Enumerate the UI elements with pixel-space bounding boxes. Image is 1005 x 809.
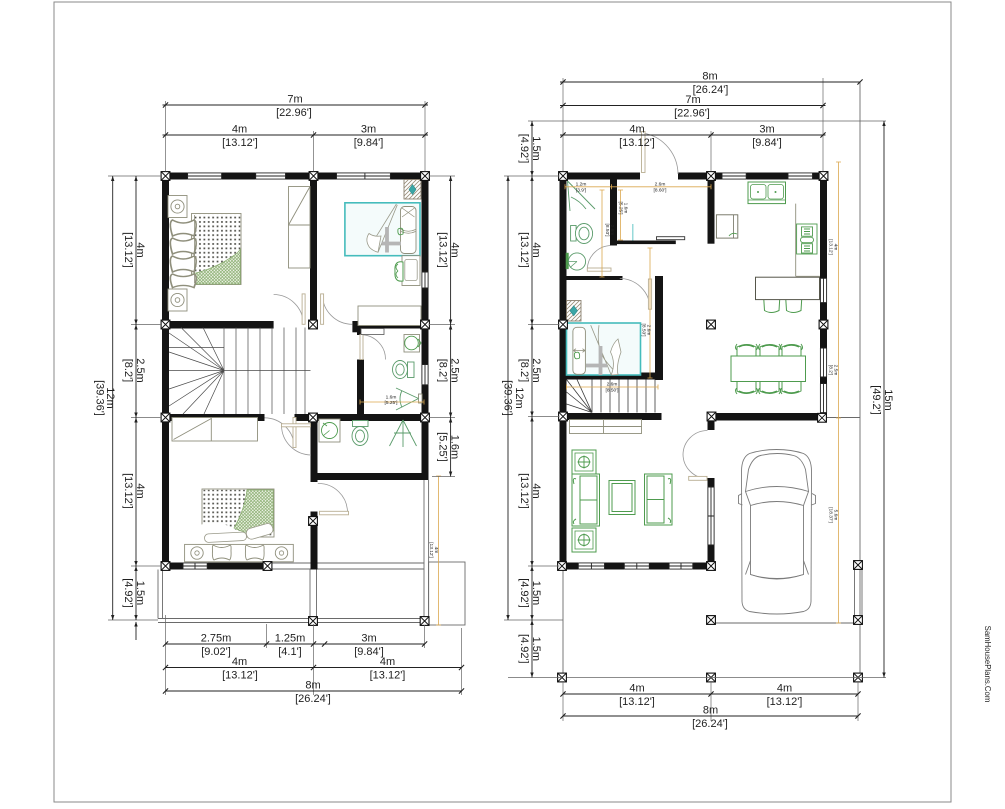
svg-text:8m: 8m (703, 705, 718, 717)
svg-text:[18.37']: [18.37'] (828, 507, 834, 523)
svg-text:[4.92']: [4.92'] (122, 578, 134, 608)
svg-text:[8.50']: [8.50'] (606, 388, 619, 394)
svg-text:4m: 4m (530, 242, 542, 257)
svg-text:1.6m: 1.6m (449, 435, 461, 459)
svg-text:2.75m: 2.75m (201, 633, 232, 645)
svg-text:[13.12']: [13.12'] (767, 696, 803, 708)
svg-text:7m: 7m (685, 94, 700, 106)
svg-text:8m: 8m (702, 71, 717, 83)
svg-text:3m: 3m (759, 124, 774, 136)
svg-text:4m: 4m (232, 656, 247, 668)
svg-text:2.5m: 2.5m (449, 358, 461, 382)
svg-text:8m: 8m (305, 680, 320, 692)
svg-text:4m: 4m (134, 242, 146, 257)
svg-text:[26.24']: [26.24'] (692, 718, 728, 730)
svg-text:[13.12']: [13.12'] (828, 239, 834, 255)
svg-text:[13.12']: [13.12'] (619, 137, 655, 149)
svg-text:[39.36']: [39.36'] (94, 380, 106, 416)
svg-text:1.5m: 1.5m (530, 581, 542, 605)
svg-text:2.6m: 2.6m (607, 382, 618, 388)
svg-text:[8.60']: [8.60'] (654, 188, 667, 194)
svg-text:4m: 4m (134, 483, 146, 498)
svg-text:[4.92']: [4.92'] (518, 634, 530, 664)
svg-text:[8.2']: [8.2'] (437, 359, 449, 383)
svg-text:1.2m: 1.2m (576, 182, 587, 188)
svg-text:[9.02']: [9.02'] (201, 646, 231, 658)
svg-text:12m: 12m (513, 387, 525, 408)
svg-text:[8.50']: [8.50'] (641, 324, 647, 337)
svg-text:[5.25']: [5.25'] (385, 400, 398, 406)
svg-text:2.6m: 2.6m (655, 182, 666, 188)
svg-text:[13.12']: [13.12'] (370, 669, 406, 681)
svg-text:SamHousePlans.Com: SamHousePlans.Com (983, 626, 992, 703)
svg-text:4m: 4m (449, 242, 461, 257)
svg-text:3m: 3m (361, 633, 376, 645)
svg-text:4m: 4m (530, 483, 542, 498)
svg-text:[13.12']: [13.12'] (222, 137, 258, 149)
svg-text:[8.50']: [8.50'] (604, 224, 610, 237)
svg-text:[13.12']: [13.12'] (122, 232, 134, 268)
svg-text:[8.2']: [8.2'] (122, 359, 134, 383)
svg-text:1.5m: 1.5m (134, 581, 146, 605)
svg-text:[4.92']: [4.92'] (518, 134, 530, 164)
svg-text:4m: 4m (232, 124, 247, 136)
svg-text:[9.84']: [9.84'] (752, 137, 782, 149)
svg-text:15m: 15m (882, 389, 894, 410)
svg-text:[13.12']: [13.12'] (122, 473, 134, 509)
svg-text:2.5m: 2.5m (530, 358, 542, 382)
svg-text:[3.9']: [3.9'] (576, 188, 586, 194)
svg-text:4m: 4m (777, 683, 792, 695)
svg-text:[13.12']: [13.12'] (222, 669, 258, 681)
svg-text:1.5m: 1.5m (530, 136, 542, 160)
svg-text:[49.2']: [49.2'] (870, 385, 882, 415)
svg-text:[13.12']: [13.12'] (619, 696, 655, 708)
svg-text:1.25m: 1.25m (275, 633, 306, 645)
svg-text:[26.24']: [26.24'] (295, 693, 331, 705)
svg-text:[22.96']: [22.96'] (276, 107, 312, 119)
svg-text:3m: 3m (361, 124, 376, 136)
svg-text:[13.12']: [13.12'] (428, 542, 434, 558)
svg-text:[5.25']: [5.25'] (618, 202, 624, 215)
svg-text:[13.12']: [13.12'] (518, 473, 530, 509)
svg-text:[9.84']: [9.84'] (354, 137, 384, 149)
svg-text:1.6m: 1.6m (386, 395, 397, 401)
svg-text:4m: 4m (380, 656, 395, 668)
svg-text:1.5m: 1.5m (530, 637, 542, 661)
svg-text:[8.2']: [8.2'] (828, 365, 834, 375)
svg-text:[22.96']: [22.96'] (674, 107, 710, 119)
svg-text:[13.12']: [13.12'] (518, 232, 530, 268)
svg-text:2.5m: 2.5m (134, 358, 146, 382)
svg-text:[4.1']: [4.1'] (278, 646, 302, 658)
svg-text:7m: 7m (287, 94, 302, 106)
svg-text:[5.25']: [5.25'] (437, 432, 449, 462)
svg-text:[8.2']: [8.2'] (518, 359, 530, 383)
svg-text:[13.12']: [13.12'] (437, 232, 449, 268)
svg-text:[4.92']: [4.92'] (518, 578, 530, 608)
svg-text:4m: 4m (629, 124, 644, 136)
svg-text:4m: 4m (629, 683, 644, 695)
svg-text:[39.36']: [39.36'] (502, 380, 514, 416)
